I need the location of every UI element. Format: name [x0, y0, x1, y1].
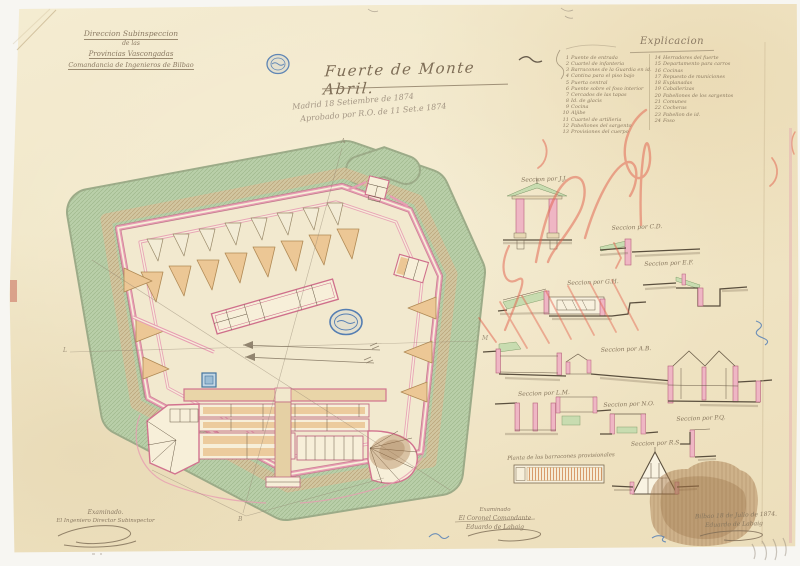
examined-label: Examinado [445, 506, 545, 514]
examiner-name: Eduardo de Labaig [445, 523, 545, 532]
header-line: Provincias Vascongadas [46, 49, 216, 59]
blue-oval-stamp-small [267, 55, 289, 74]
cut-letter: L [62, 347, 67, 354]
scanned-fort-plan: A B L M Direccion Subinspeccion de las P… [0, 0, 800, 566]
signature-block-center: Examinado El Coronel Comandante Eduardo … [445, 506, 545, 532]
blue-oval-stamp-large [330, 310, 362, 335]
examined-label: Examinado. [48, 508, 163, 517]
cut-letter: B [237, 516, 243, 523]
header-block: Direccion Subinspeccion de las Provincia… [46, 29, 216, 70]
header-line: Comandancia de Ingenieros de Bilbao [46, 61, 216, 70]
legend-title: Explicacion [626, 36, 718, 47]
red-margin-line [789, 128, 792, 543]
signature-block-left: Examinado. El Ingeniero Director Subinsp… [48, 508, 163, 525]
section-ef-drawing [643, 274, 748, 306]
header-line: de las [46, 40, 216, 49]
section-no-drawing [600, 414, 658, 434]
examiner-role: El Coronel Comandante [445, 514, 545, 523]
legend-right-column: 14Herradores del fuerte 15Departamento p… [653, 55, 745, 124]
legend-left-column: 1Puente de entrada 2Cuartel de infanteri… [561, 55, 651, 135]
legend-item: 13Provisiones del cuerpo [561, 129, 651, 135]
legend-item: 24Foso [653, 118, 745, 124]
examiner-role: El Ingeniero Director Subinspector [48, 517, 163, 525]
barracks-plan-drawing [514, 465, 604, 483]
cut-letter: M [481, 335, 489, 342]
cut-letter: A [340, 138, 346, 145]
sheet-title: Fuerte de Monte Abril. [323, 58, 510, 99]
header-line: Direccion Subinspeccion [46, 29, 216, 40]
